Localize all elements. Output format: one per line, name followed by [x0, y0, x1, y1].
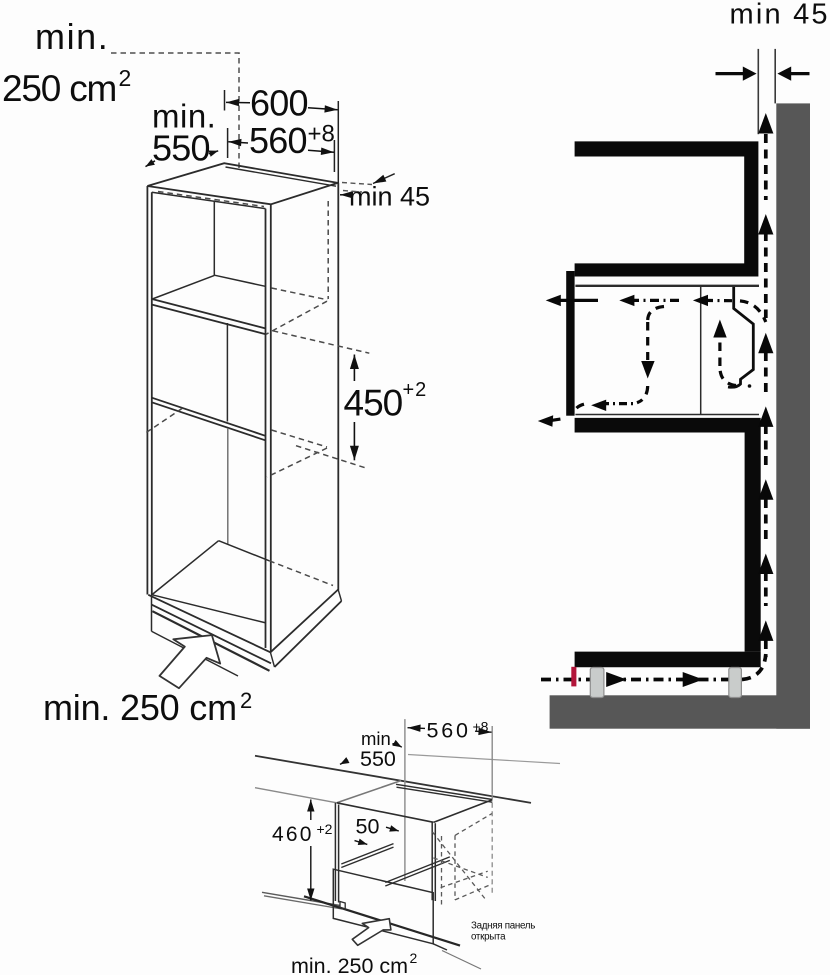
svg-text:min 45: min 45: [730, 0, 830, 31]
svg-text:2: 2: [410, 950, 418, 966]
svg-text:550: 550: [152, 128, 210, 169]
svg-text:2: 2: [119, 65, 132, 91]
svg-text:min.: min.: [35, 16, 109, 57]
svg-text:460: 460: [272, 823, 314, 846]
svg-text:450: 450: [344, 383, 403, 424]
svg-text:min.: min.: [361, 728, 396, 749]
svg-text:+2: +2: [403, 379, 428, 401]
svg-text:Задняя панель: Задняя панель: [471, 921, 535, 932]
svg-text:открыта: открыта: [471, 932, 506, 943]
svg-text:2: 2: [240, 688, 252, 713]
svg-text:+2: +2: [317, 821, 333, 837]
svg-text:560: 560: [249, 120, 307, 161]
svg-text:min 45: min 45: [349, 182, 430, 212]
svg-text:min. 250 cm: min. 250 cm: [43, 687, 237, 728]
svg-text:min. 250 cm: min. 250 cm: [291, 954, 408, 975]
svg-text:550: 550: [360, 747, 396, 771]
svg-text:250 cm: 250 cm: [2, 68, 116, 109]
svg-text:+8: +8: [308, 121, 335, 148]
svg-text:600: 600: [250, 83, 308, 124]
svg-text:50: 50: [356, 815, 380, 839]
svg-text:560: 560: [427, 719, 471, 743]
